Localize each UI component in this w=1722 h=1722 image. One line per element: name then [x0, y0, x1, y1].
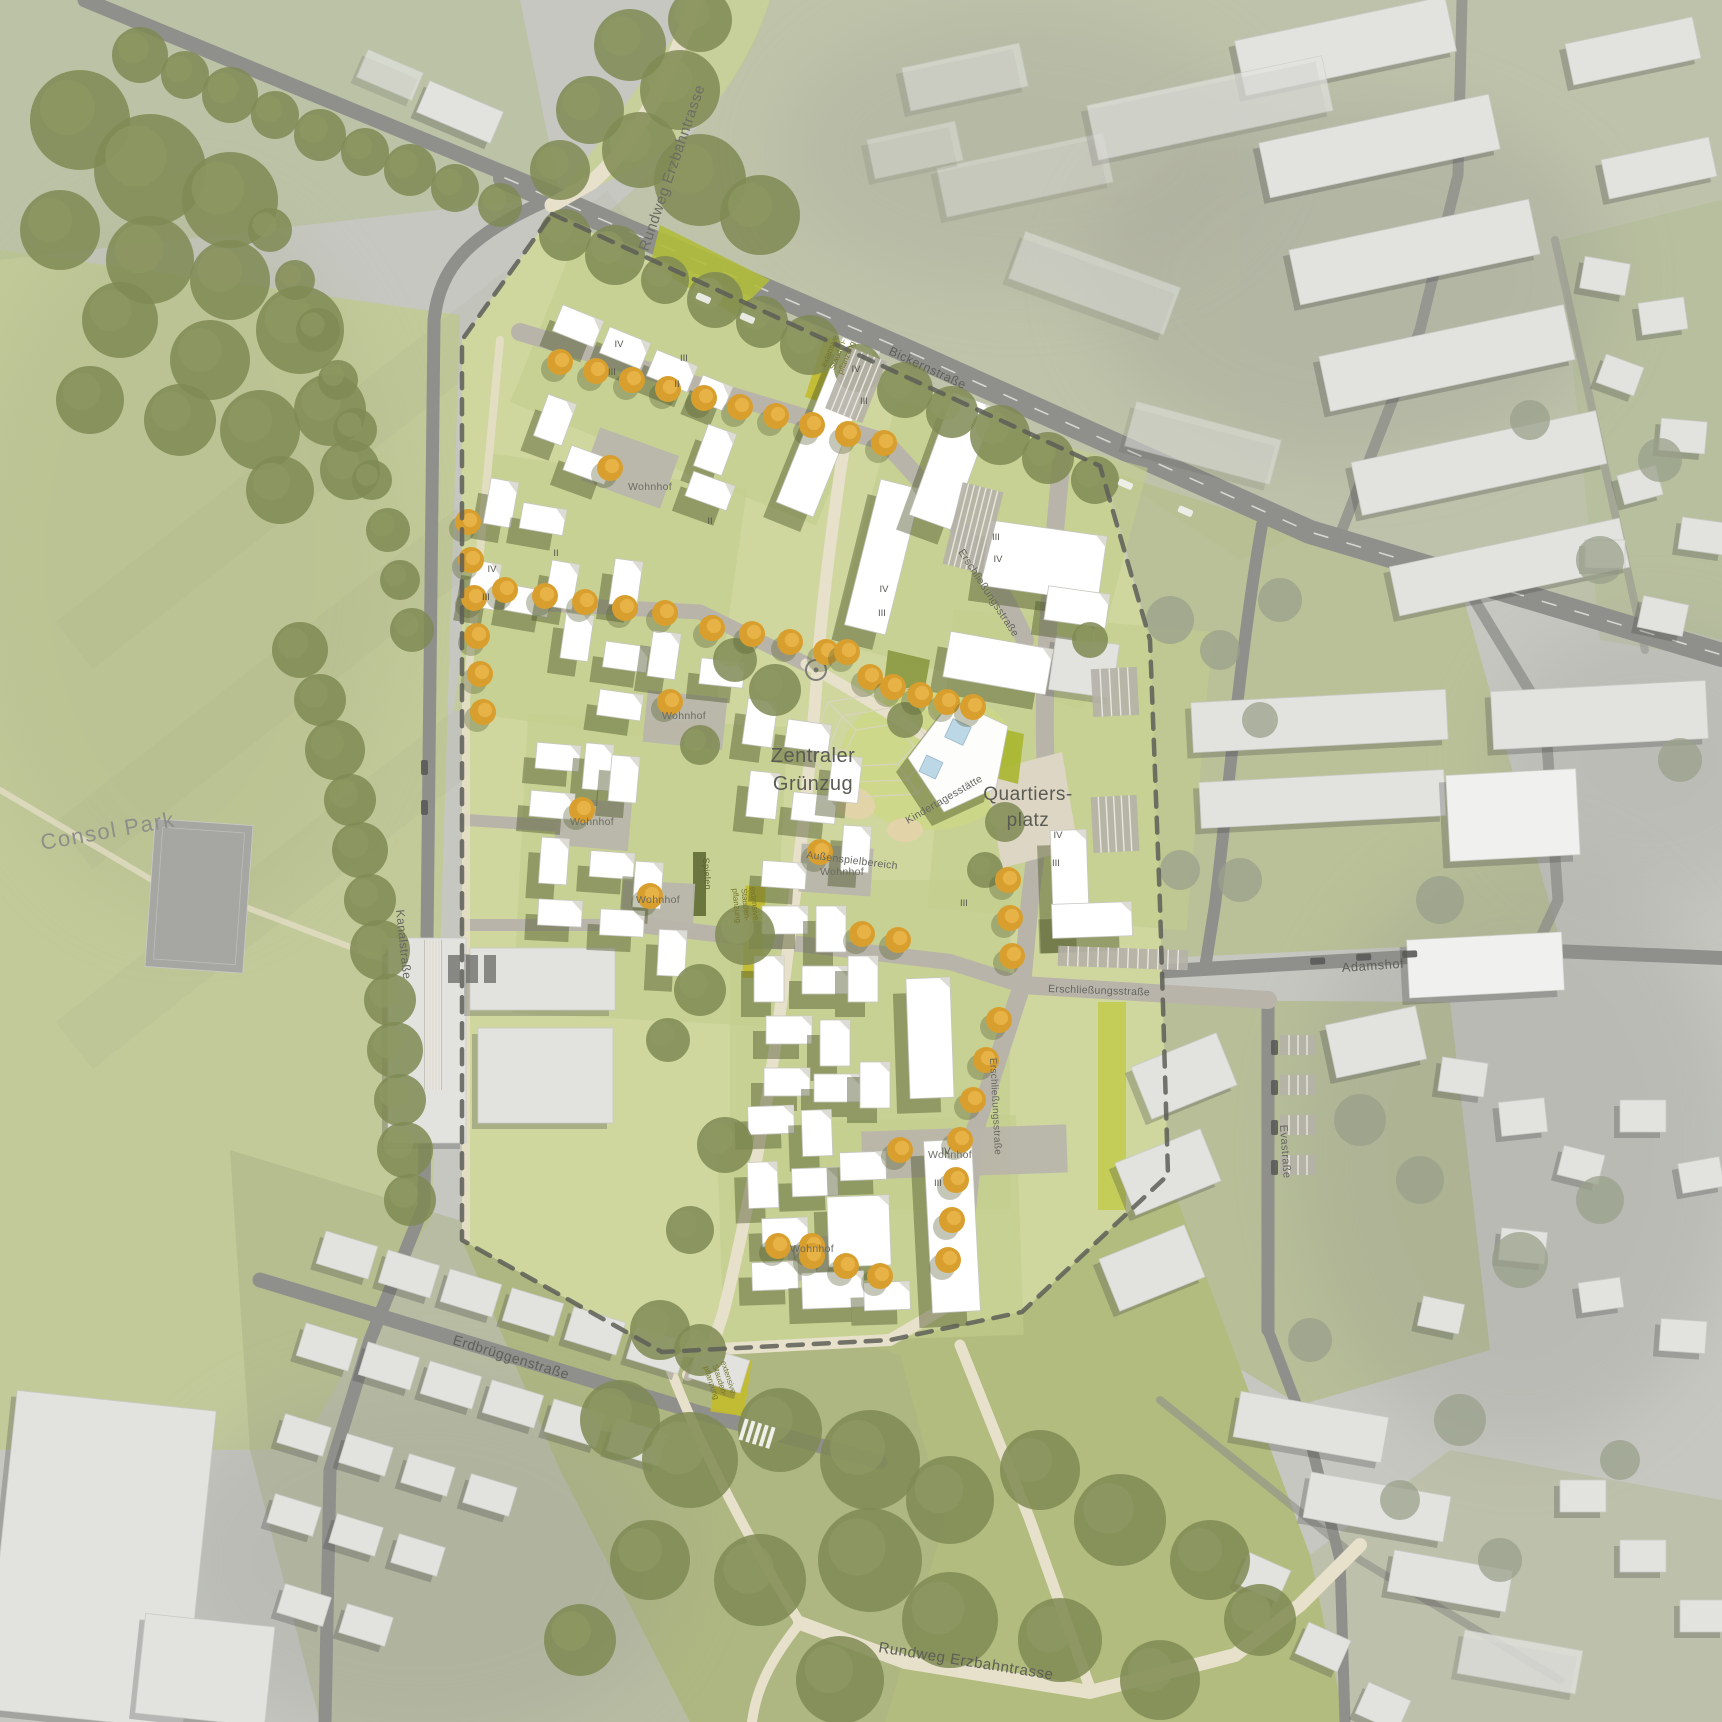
- existing-tree: [1288, 1318, 1332, 1362]
- green-tree-crown: [915, 1465, 963, 1513]
- street-tree-crown: [577, 801, 591, 815]
- planned-building: [816, 906, 846, 952]
- green-tree-crown: [329, 779, 358, 808]
- street-tree-crown: [605, 459, 619, 473]
- storey-numeral: III: [992, 532, 1000, 543]
- planned-building: [1051, 902, 1132, 939]
- street-tree-crown: [843, 425, 857, 439]
- green-tree-crown: [1076, 626, 1096, 646]
- green-tree-crown: [151, 391, 191, 431]
- green-tree-crown: [166, 56, 192, 82]
- existing-tree: [1576, 1176, 1624, 1224]
- masterplan-svg: Consol ParkRundweg ErzbahntrasseBickerns…: [0, 0, 1722, 1722]
- street-tree-crown: [947, 1211, 961, 1225]
- green-tree-crown: [338, 828, 369, 859]
- existing-building: [135, 1613, 275, 1722]
- existing-building: [1560, 1480, 1606, 1512]
- green-tree-crown: [652, 1422, 705, 1475]
- street-tree-crown: [841, 1257, 855, 1271]
- street-tree-crown: [627, 371, 641, 385]
- storey-numeral: IV: [880, 584, 890, 595]
- street-tree-crown: [994, 1011, 1008, 1025]
- green-tree-crown: [931, 391, 960, 420]
- car: [1402, 950, 1417, 958]
- planned-building: [848, 956, 878, 1002]
- green-tree-crown: [636, 1306, 669, 1339]
- car: [1271, 1040, 1278, 1055]
- existing-building: [1620, 1540, 1666, 1572]
- green-tree-crown: [228, 398, 272, 442]
- storey-numeral: III: [1052, 858, 1060, 869]
- existing-tree: [1478, 1538, 1522, 1582]
- existing-tree: [1416, 876, 1464, 924]
- parking-tine: [1148, 949, 1149, 969]
- parking-tine: [1118, 948, 1119, 968]
- stauden-label: extensiveStauden-pflanzung: [730, 886, 760, 923]
- existing-building: [1678, 517, 1722, 555]
- street-tree-crown: [591, 362, 605, 376]
- car: [421, 760, 428, 775]
- car: [1271, 1160, 1278, 1175]
- green-tree-crown: [1083, 1483, 1134, 1534]
- existing-tree: [1258, 578, 1302, 622]
- storey-numeral: IV: [615, 339, 625, 350]
- green-tree-crown: [389, 149, 418, 178]
- green-tree-crown: [198, 248, 242, 292]
- street-tree-crown: [500, 581, 514, 595]
- green-tree-crown: [703, 1123, 734, 1154]
- existing-building: [478, 1028, 613, 1123]
- street-tree-crown: [1007, 947, 1021, 961]
- street-tree-crown: [555, 353, 569, 367]
- street-tree-crown: [620, 599, 634, 613]
- street-tree-crown: [1003, 871, 1017, 885]
- green-tree-crown: [679, 969, 708, 998]
- street-tree-crown: [875, 1267, 889, 1281]
- street-tree-crown: [942, 693, 956, 707]
- green-tree-crown: [208, 73, 239, 104]
- green-tree-crown: [828, 1518, 885, 1575]
- street-tree-crown: [475, 665, 489, 679]
- map-label: Wohnhof: [790, 1243, 834, 1255]
- map-label: Wohnhof: [820, 866, 864, 878]
- street-tree-crown: [580, 593, 594, 607]
- car: [1271, 1120, 1278, 1135]
- existing-tree: [1334, 1094, 1386, 1146]
- storey-numeral: III: [860, 396, 868, 407]
- green-tree-crown: [482, 187, 506, 211]
- street-tree-crown: [771, 407, 785, 421]
- existing-tree: [1146, 596, 1194, 644]
- car: [421, 800, 428, 815]
- parking-tine: [1098, 947, 1099, 967]
- green-tree-crown: [346, 133, 372, 159]
- street-tree-crown: [469, 589, 483, 603]
- storey-numeral: III: [960, 898, 968, 909]
- planned-building: [906, 977, 954, 1098]
- existing-tree: [1658, 738, 1702, 782]
- green-tree-crown: [1128, 1648, 1172, 1692]
- parking-tine: [1138, 949, 1139, 969]
- parking-tine: [1078, 946, 1079, 966]
- street-tree-crown: [466, 551, 480, 565]
- parking-row: [1091, 667, 1139, 717]
- green-tree-crown: [805, 1645, 853, 1693]
- green-tree-crown: [728, 183, 772, 227]
- green-tree-crown: [40, 80, 95, 135]
- green-tree-crown: [115, 225, 163, 273]
- existing-tree: [1380, 1480, 1420, 1520]
- street-tree-crown: [735, 398, 749, 412]
- storey-numeral: IV: [994, 554, 1004, 565]
- street-tree-crown: [785, 633, 799, 647]
- green-tree-crown: [322, 364, 344, 386]
- storey-numeral: III: [482, 592, 490, 603]
- existing-tree: [1218, 858, 1262, 902]
- green-tree-crown: [370, 512, 394, 536]
- existing-building: [1638, 297, 1688, 335]
- truck: [448, 955, 460, 983]
- existing-building: [1659, 1318, 1707, 1353]
- green-tree-crown: [384, 564, 406, 586]
- storey-numeral: IV: [1054, 830, 1064, 841]
- existing-building: [1578, 1277, 1624, 1313]
- street-tree-crown: [915, 686, 929, 700]
- street-tree-crown: [463, 513, 477, 527]
- street-tree-crown: [699, 389, 713, 403]
- green-tree-crown: [278, 628, 309, 659]
- existing-building: [1620, 1100, 1666, 1132]
- street-tree-crown: [895, 1141, 909, 1155]
- green-tree-crown: [379, 1079, 408, 1108]
- parking-tine: [1108, 947, 1109, 967]
- existing-tree: [1492, 1232, 1548, 1288]
- green-tree-crown: [28, 198, 72, 242]
- green-tree-crown: [356, 926, 389, 959]
- green-tree-crown: [253, 463, 290, 500]
- parking-tine: [1178, 950, 1179, 970]
- green-tree-crown: [118, 33, 149, 64]
- map-label: Wohnhof: [628, 481, 672, 493]
- green-tree-crown: [650, 1022, 674, 1046]
- street-tree-crown: [857, 925, 871, 939]
- street-tree-crown: [1005, 909, 1019, 923]
- green-tree-crown: [912, 1582, 965, 1635]
- existing-tree: [1510, 400, 1550, 440]
- existing-building: [1498, 1098, 1547, 1137]
- green-tree-crown: [1178, 1528, 1222, 1572]
- green-tree-crown: [671, 1211, 697, 1237]
- street-tree-crown: [893, 931, 907, 945]
- existing-tree: [1160, 850, 1200, 890]
- street-tree-crown: [747, 625, 761, 639]
- green-tree-crown: [551, 1611, 591, 1651]
- green-tree-crown: [299, 679, 328, 708]
- map-label: Wohnhof: [662, 710, 706, 722]
- existing-building: [1438, 1057, 1488, 1097]
- street-tree-crown: [951, 1171, 965, 1185]
- storey-numeral: IV: [852, 364, 862, 375]
- storey-numeral: III: [680, 353, 688, 364]
- parking-tine: [1168, 950, 1169, 970]
- existing-building: [1680, 1600, 1722, 1632]
- map-label: Grünzug: [773, 773, 853, 795]
- green-tree-crown: [252, 212, 276, 236]
- street-tree-crown: [865, 668, 879, 682]
- green-tree-crown: [588, 1388, 632, 1432]
- green-tree-crown: [90, 290, 132, 332]
- street-tree-crown: [888, 678, 902, 692]
- storey-numeral: IV: [942, 1146, 952, 1157]
- green-tree-crown: [356, 464, 378, 486]
- map-label: Quartiers-: [983, 784, 1072, 805]
- green-tree-crown: [1008, 1438, 1052, 1482]
- street-tree-crown: [540, 587, 554, 601]
- green-tree-crown: [563, 83, 600, 120]
- car: [1271, 1080, 1278, 1095]
- planned-building: [754, 956, 784, 1002]
- existing-building: [1407, 932, 1565, 998]
- existing-tree: [1396, 1156, 1444, 1204]
- green-tree-crown: [279, 264, 301, 286]
- parking-tine: [1158, 949, 1159, 969]
- street-tree-crown: [707, 619, 721, 633]
- street-tree-crown: [842, 643, 856, 657]
- green-tree-crown: [436, 169, 462, 195]
- green-tree-crown: [1026, 1606, 1072, 1652]
- street-tree-crown: [968, 1091, 982, 1105]
- green-tree-crown: [337, 412, 361, 436]
- planned-building: [827, 1195, 891, 1267]
- map-label: platz: [1007, 810, 1050, 831]
- green-tree-crown: [723, 1543, 774, 1594]
- green-tree-crown: [591, 231, 624, 264]
- parking-tine: [1068, 946, 1069, 966]
- car: [1310, 957, 1325, 965]
- green-tree-crown: [536, 146, 569, 179]
- storey-numeral: II: [553, 548, 558, 559]
- green-tree-crown: [383, 1128, 414, 1159]
- green-tree-crown: [679, 1329, 708, 1358]
- street-tree-crown: [879, 434, 893, 448]
- existing-tree: [1600, 1440, 1640, 1480]
- masterplan-map: Consol ParkRundweg ErzbahntrasseBickerns…: [0, 0, 1722, 1722]
- storey-numeral: III: [934, 1178, 942, 1189]
- green-tree-crown: [684, 729, 706, 751]
- green-tree-crown: [300, 312, 324, 336]
- green-tree-crown: [369, 979, 398, 1008]
- storey-numeral: III: [878, 608, 886, 619]
- green-tree-crown: [618, 1528, 662, 1572]
- storey-numeral: II: [674, 379, 679, 390]
- storey-numeral: II: [707, 516, 712, 527]
- existing-building: [1446, 769, 1580, 862]
- parking-tine: [1128, 948, 1129, 968]
- street-tree-crown: [943, 1251, 957, 1265]
- green-tree-crown: [311, 726, 344, 759]
- planned-building: [766, 1016, 812, 1044]
- map-label: Wohnhof: [636, 894, 680, 906]
- green-tree-crown: [394, 612, 418, 636]
- green-tree-crown: [299, 114, 328, 143]
- green-tree-crown: [1231, 1591, 1271, 1631]
- street-tree-crown: [665, 693, 679, 707]
- planned-building: [820, 1020, 850, 1066]
- storey-numeral: IV: [488, 564, 498, 575]
- green-tree-crown: [971, 856, 991, 876]
- existing-tree: [1242, 702, 1278, 738]
- street-tree-crown: [660, 604, 674, 618]
- existing-tree: [1576, 536, 1624, 584]
- truck: [484, 955, 496, 983]
- storey-numeral: III: [608, 367, 616, 378]
- green-tree-crown: [63, 373, 100, 410]
- street-tree-crown: [472, 627, 486, 641]
- green-tree-crown: [601, 16, 641, 56]
- green-tree-crown: [373, 1028, 404, 1059]
- sports-field: [145, 819, 253, 973]
- green-tree-crown: [105, 125, 167, 187]
- planned-building: [860, 1062, 890, 1108]
- existing-tree: [1434, 1394, 1486, 1446]
- green-tree-crown: [754, 669, 783, 698]
- green-tree-crown: [178, 328, 222, 372]
- street-tree-crown: [807, 416, 821, 430]
- planned-building: [596, 689, 643, 721]
- street-tree-crown: [968, 698, 982, 712]
- street-tree-crown: [955, 1131, 969, 1145]
- map-label: Wohnhof: [570, 816, 614, 828]
- map-label: Zentraler: [771, 745, 856, 767]
- green-tree-crown: [389, 1179, 418, 1208]
- parking-tine: [1088, 947, 1089, 967]
- green-tree-crown: [830, 1420, 885, 1475]
- existing-tree: [1200, 630, 1240, 670]
- green-tree-crown: [349, 879, 378, 908]
- truck: [466, 955, 478, 983]
- green-tree-crown: [256, 96, 282, 122]
- existing-tree: [1638, 438, 1682, 482]
- street-tree-crown: [478, 703, 492, 717]
- green-tree-crown: [192, 162, 245, 215]
- street-tree-crown: [773, 1237, 787, 1251]
